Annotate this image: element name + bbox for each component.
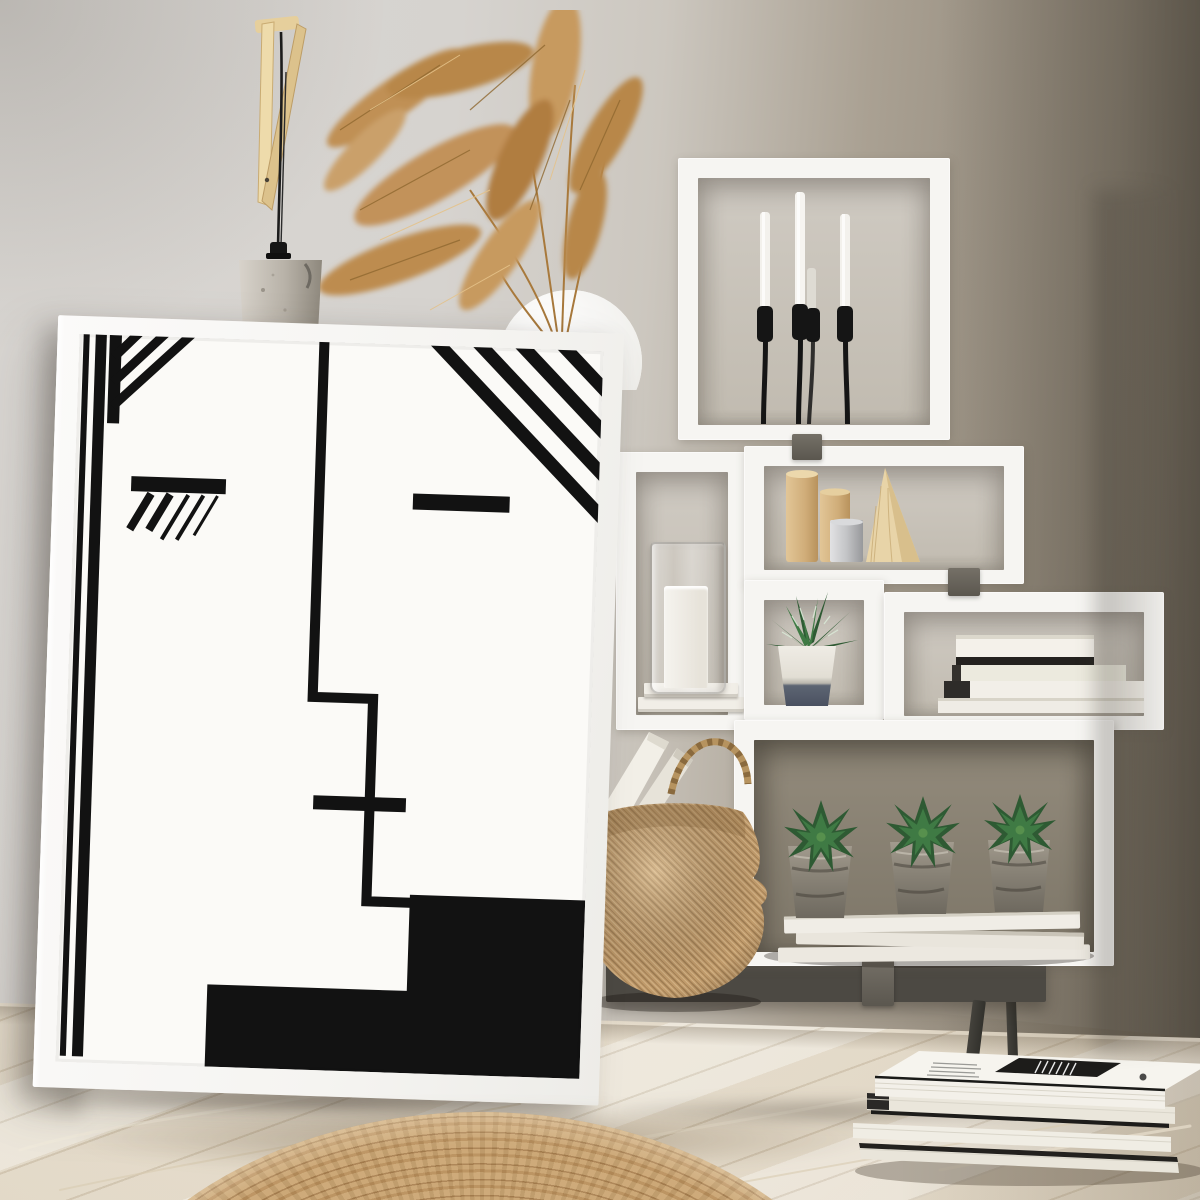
shelf-wall-shadow — [1095, 190, 1195, 1050]
bracket-peg — [254, 16, 299, 34]
basket-body — [587, 803, 767, 998]
bracket-hole — [265, 178, 269, 182]
wood-decor — [764, 466, 1004, 568]
candelabra-holders — [757, 304, 853, 424]
succulent-leaves — [766, 592, 858, 650]
shelf-clip-top — [792, 434, 822, 460]
wood-cylinder-tall — [786, 470, 818, 562]
poster-frame — [33, 315, 624, 1105]
lamp-socket-collar — [266, 253, 291, 259]
art-right-eye — [413, 494, 510, 513]
poster-art — [56, 334, 604, 1079]
metal-cup — [830, 519, 863, 562]
living-room-scene — [0, 0, 1200, 1200]
pillar-candle — [664, 586, 708, 688]
book-pile — [778, 911, 1090, 962]
succulent-pot — [778, 646, 836, 706]
floor-books — [853, 1051, 1200, 1173]
pots-and-books — [744, 728, 1114, 968]
candelabra — [678, 158, 950, 440]
art-left-eye — [131, 476, 226, 494]
basket-handle — [671, 742, 748, 794]
small-succulent — [758, 582, 870, 710]
candles — [760, 192, 850, 312]
shelf-clip-middle — [948, 568, 980, 596]
top-book-logo-dot — [1140, 1074, 1147, 1081]
book-under-hurricane-1 — [638, 697, 744, 712]
abstract-face-line-art — [56, 334, 604, 1079]
wood-cone — [866, 468, 920, 562]
glass-hurricane — [650, 542, 726, 694]
leaning-poster — [33, 315, 624, 1105]
